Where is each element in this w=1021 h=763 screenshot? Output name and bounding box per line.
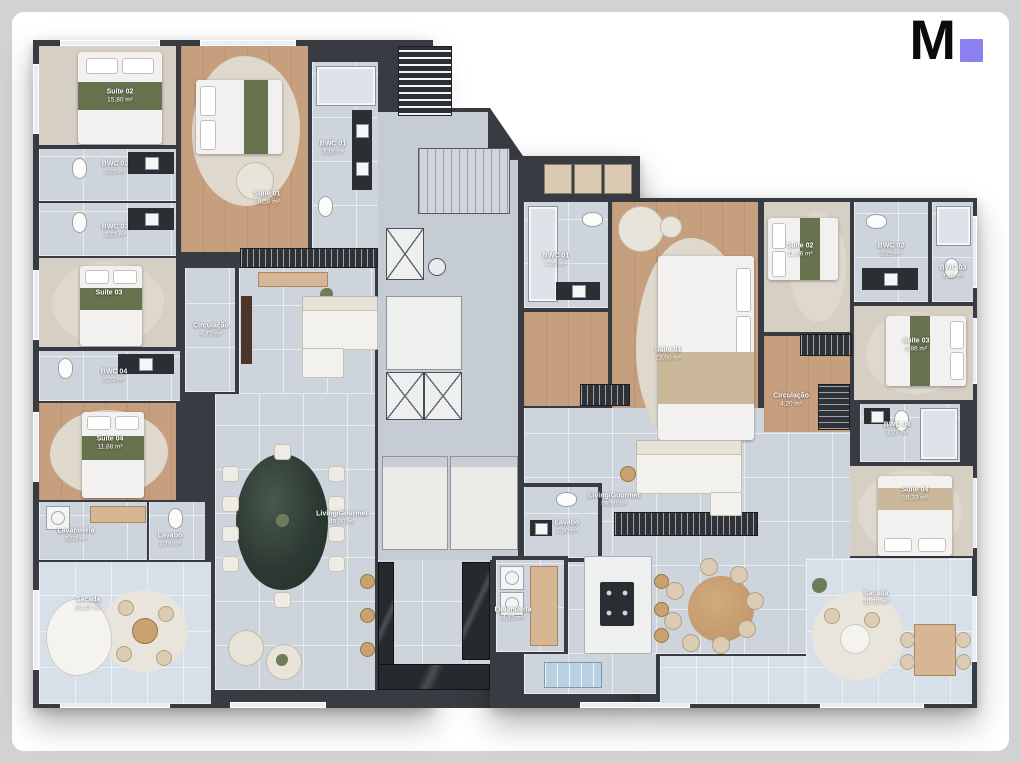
shower xyxy=(936,206,971,246)
pillow xyxy=(122,58,154,74)
stool xyxy=(360,574,375,589)
wardrobe xyxy=(240,248,378,268)
service-shaft xyxy=(424,372,462,420)
vanity xyxy=(556,282,600,300)
pillow xyxy=(884,538,912,552)
label-right-bwc04: BWC 043,27 m² xyxy=(884,421,910,438)
chair xyxy=(328,526,345,542)
ac-unit xyxy=(544,164,572,194)
label-left-sacada: Sacada10,47 m² xyxy=(75,596,101,613)
kitchen-cabinet xyxy=(462,562,490,660)
staircase xyxy=(418,148,510,214)
chair xyxy=(328,466,345,482)
label-right-suite03: Suite 039,86 m² xyxy=(903,337,930,354)
label-left-circulacao: Circulação4,73 m² xyxy=(193,322,229,339)
label-left-suite03: Suite 03 xyxy=(96,288,123,297)
toilet xyxy=(556,492,577,507)
cooktop xyxy=(600,582,634,626)
label-right-sacada: Sacada10,78 m² xyxy=(863,590,889,607)
label-left-living: Living/Gourmet49,80 m² xyxy=(316,510,368,527)
label-left-bwc02: BWC 023,20 m² xyxy=(102,160,128,177)
label-right-bwc03: BWC 033,18 m² xyxy=(940,264,966,281)
chair xyxy=(746,592,764,610)
label-right-circulacao: Circulação4,20 m² xyxy=(773,392,809,409)
outdoor-chair xyxy=(864,612,880,628)
toilet xyxy=(318,196,333,217)
pillow xyxy=(115,416,139,430)
service-shaft xyxy=(386,228,424,280)
sofa-chaise xyxy=(710,492,742,516)
shower xyxy=(920,408,958,460)
toilet xyxy=(72,158,87,179)
elevator xyxy=(450,456,518,550)
pillow xyxy=(772,223,786,249)
stool xyxy=(360,642,375,657)
outdoor-chair xyxy=(900,632,915,648)
tv-panel xyxy=(241,296,252,364)
armchair xyxy=(618,206,664,252)
bed xyxy=(80,266,142,346)
chair xyxy=(222,466,239,482)
shaft xyxy=(386,296,462,370)
outdoor-dining-table xyxy=(914,624,956,676)
sink xyxy=(871,411,884,423)
toilet xyxy=(582,212,603,227)
label-left-suite04: Suite 0411,88 m² xyxy=(97,435,124,452)
lounge-pouf xyxy=(228,630,264,666)
stool xyxy=(654,574,669,589)
bed-runner xyxy=(244,80,268,154)
toilet xyxy=(168,508,183,529)
outdoor-table xyxy=(132,618,158,644)
door-symbol xyxy=(428,258,446,276)
outdoor-chair xyxy=(118,600,134,616)
kitchen-cabinet xyxy=(544,662,602,688)
sideboard xyxy=(258,272,328,287)
wardrobe xyxy=(580,384,630,406)
vanity xyxy=(128,208,174,230)
pillow xyxy=(86,58,118,74)
shower xyxy=(316,66,376,106)
window xyxy=(230,702,326,708)
stool xyxy=(654,628,669,643)
sink xyxy=(884,273,898,286)
wardrobe xyxy=(818,384,850,430)
label-right-living: Living/Gourmet56,50 m² xyxy=(588,492,640,509)
sofa xyxy=(636,454,742,494)
label-left-lavabo: Lavabo1,78 m² xyxy=(158,532,183,549)
pillow xyxy=(113,270,137,284)
vanity xyxy=(530,520,552,536)
service-shaft xyxy=(386,372,424,420)
chair xyxy=(222,526,239,542)
label-left-bwc03: BWC 033,23 m² xyxy=(102,223,128,240)
chair xyxy=(666,582,684,600)
chair xyxy=(222,496,239,512)
sink xyxy=(572,285,586,298)
outdoor-table xyxy=(840,624,870,654)
vanity xyxy=(862,268,918,290)
label-left-suite02: Suite 0215,80 m² xyxy=(107,88,134,105)
label-right-suite01: Suite 0123,90 m² xyxy=(655,346,682,363)
sink xyxy=(535,523,548,535)
pillow xyxy=(87,416,111,430)
stool xyxy=(360,608,375,623)
laundry-counter xyxy=(530,566,558,646)
washing-machine xyxy=(500,566,524,590)
label-left-lavanderia: Lavanderia5,03 m² xyxy=(58,527,95,544)
outdoor-chair xyxy=(956,632,971,648)
label-right-suite02: Suite 0211,96 m² xyxy=(787,242,814,259)
stool xyxy=(654,602,669,617)
chair xyxy=(712,636,730,654)
brand-logo: M xyxy=(909,18,983,62)
ac-unit xyxy=(574,164,602,194)
chair xyxy=(274,444,291,460)
vanity xyxy=(128,152,174,174)
chair xyxy=(222,556,239,572)
label-left-suite01: Suite 0118,56 m² xyxy=(254,190,281,207)
sofa-chaise xyxy=(302,348,344,378)
pillow xyxy=(85,270,109,284)
label-left-bwc04: BWC 043,23 m² xyxy=(101,368,127,385)
chair xyxy=(328,556,345,572)
label-right-bwc02: BWC 023,25 m² xyxy=(878,242,904,259)
sink xyxy=(356,162,369,176)
toilet xyxy=(58,358,73,379)
label-left-bwc01: BWC 013,16 m² xyxy=(320,140,346,157)
outdoor-chair xyxy=(956,654,971,670)
chair xyxy=(700,558,718,576)
chair xyxy=(682,634,700,652)
pillow xyxy=(950,321,964,349)
pillow xyxy=(200,86,216,116)
logo-letter: M xyxy=(909,18,953,62)
sink xyxy=(356,124,369,138)
sink xyxy=(145,213,159,226)
outdoor-chair xyxy=(156,650,172,666)
floor-plan: Suite 0215,80 m² BWC 023,20 m² BWC 033,2… xyxy=(0,0,1021,763)
outdoor-chair xyxy=(158,606,174,622)
laundry-counter xyxy=(90,506,146,523)
label-right-bwc01: BWC 014,35 m² xyxy=(543,252,569,269)
pillow xyxy=(950,352,964,380)
chair xyxy=(274,592,291,608)
toilet xyxy=(866,214,887,229)
outdoor-chair xyxy=(116,646,132,662)
pillow xyxy=(200,120,216,150)
bed xyxy=(196,80,282,154)
vanity xyxy=(352,110,372,190)
sink xyxy=(139,358,153,371)
vent-shaft xyxy=(398,46,452,116)
toilet xyxy=(72,212,87,233)
room-right-sacada-strip xyxy=(660,656,806,704)
wardrobe xyxy=(800,334,852,356)
outdoor-chair xyxy=(824,608,840,624)
outdoor-chair xyxy=(900,654,915,670)
label-right-lavabo: Lavabo1,90 m² xyxy=(555,519,580,536)
sink xyxy=(145,157,159,170)
chair xyxy=(730,566,748,584)
elevator xyxy=(382,456,448,550)
label-right-lavanderia: Lavanderia4,72 m² xyxy=(495,606,532,623)
logo-square-icon xyxy=(960,39,983,62)
sofa xyxy=(302,310,378,350)
ac-unit xyxy=(604,164,632,194)
bed xyxy=(82,412,144,498)
pillow xyxy=(736,268,751,312)
kitchen-counter xyxy=(378,664,490,690)
side-table xyxy=(620,466,636,482)
chair xyxy=(738,620,756,638)
pillow xyxy=(918,538,946,552)
label-right-suite04: Suite 0416,33 m² xyxy=(902,486,929,503)
pillow xyxy=(772,251,786,277)
ottoman xyxy=(660,216,682,238)
floor-plan-page: { "logo": { "letter": "M", "square_style… xyxy=(0,0,1021,763)
